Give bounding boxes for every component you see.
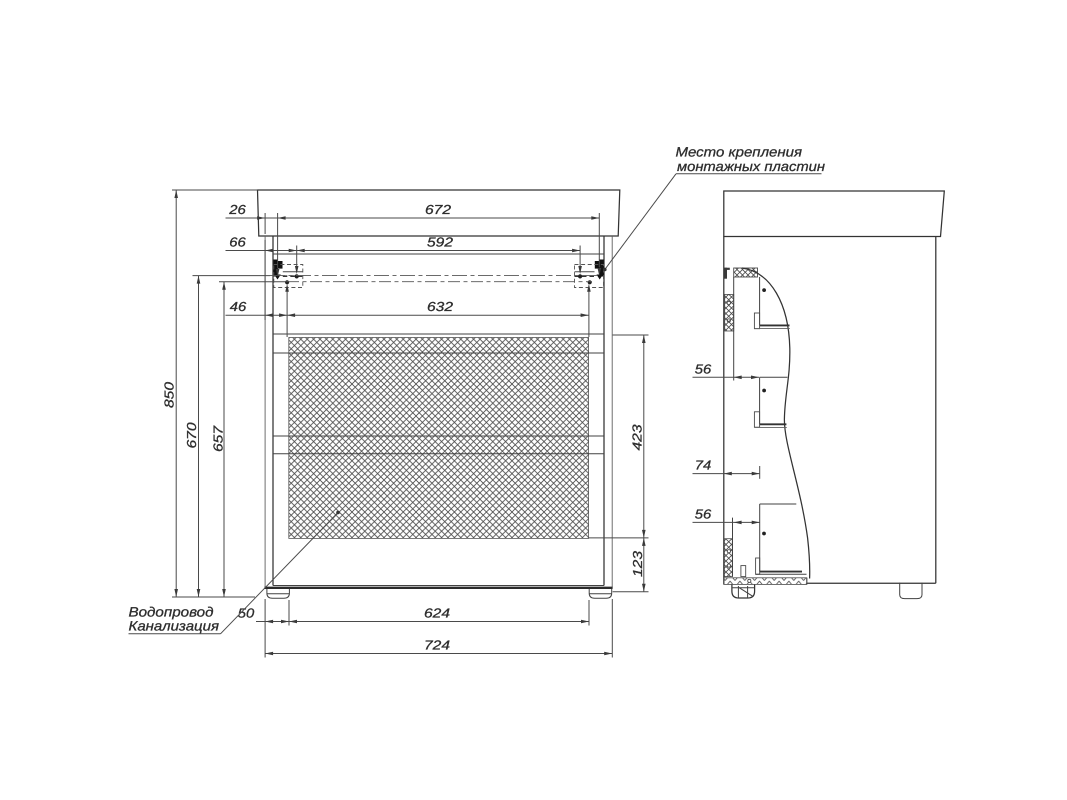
svg-text:26: 26	[228, 202, 247, 217]
svg-text:123: 123	[630, 550, 645, 577]
svg-text:632: 632	[427, 299, 454, 314]
svg-text:монтажных пластин: монтажных пластин	[677, 159, 826, 174]
svg-text:672: 672	[425, 202, 452, 217]
svg-text:66: 66	[229, 235, 246, 250]
svg-text:592: 592	[427, 235, 454, 250]
svg-text:Водопровод: Водопровод	[129, 605, 215, 620]
svg-text:423: 423	[629, 424, 644, 451]
svg-text:670: 670	[184, 422, 199, 449]
svg-text:Канализация: Канализация	[129, 619, 220, 634]
svg-text:56: 56	[695, 506, 712, 521]
svg-text:624: 624	[424, 606, 450, 621]
svg-text:Место крепления: Место крепления	[676, 145, 803, 160]
svg-text:850: 850	[162, 381, 177, 408]
svg-text:74: 74	[695, 458, 712, 473]
svg-text:46: 46	[230, 299, 247, 314]
svg-text:657: 657	[211, 425, 226, 452]
svg-text:724: 724	[424, 638, 450, 653]
svg-text:56: 56	[695, 361, 712, 376]
